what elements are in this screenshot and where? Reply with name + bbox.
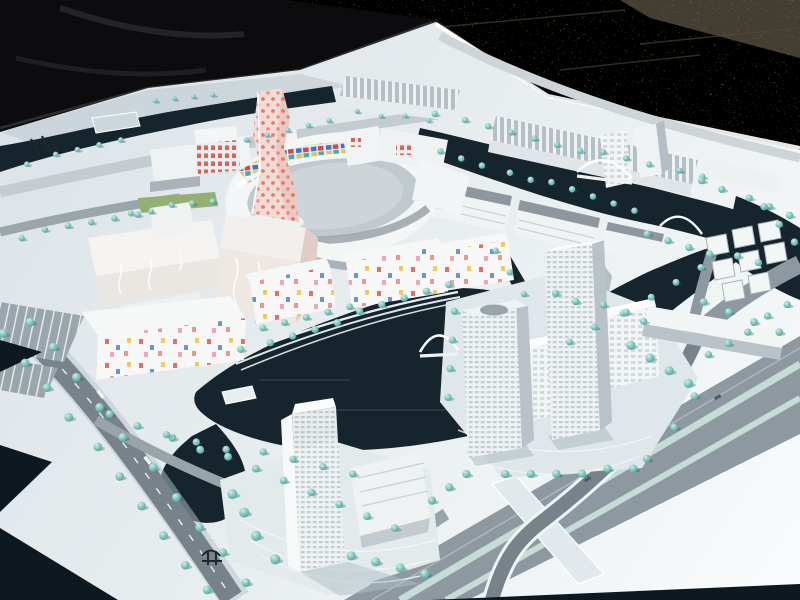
scale-model-scene (0, 0, 800, 600)
red-window-block (194, 126, 240, 174)
photo-of-scale-model (0, 0, 800, 600)
